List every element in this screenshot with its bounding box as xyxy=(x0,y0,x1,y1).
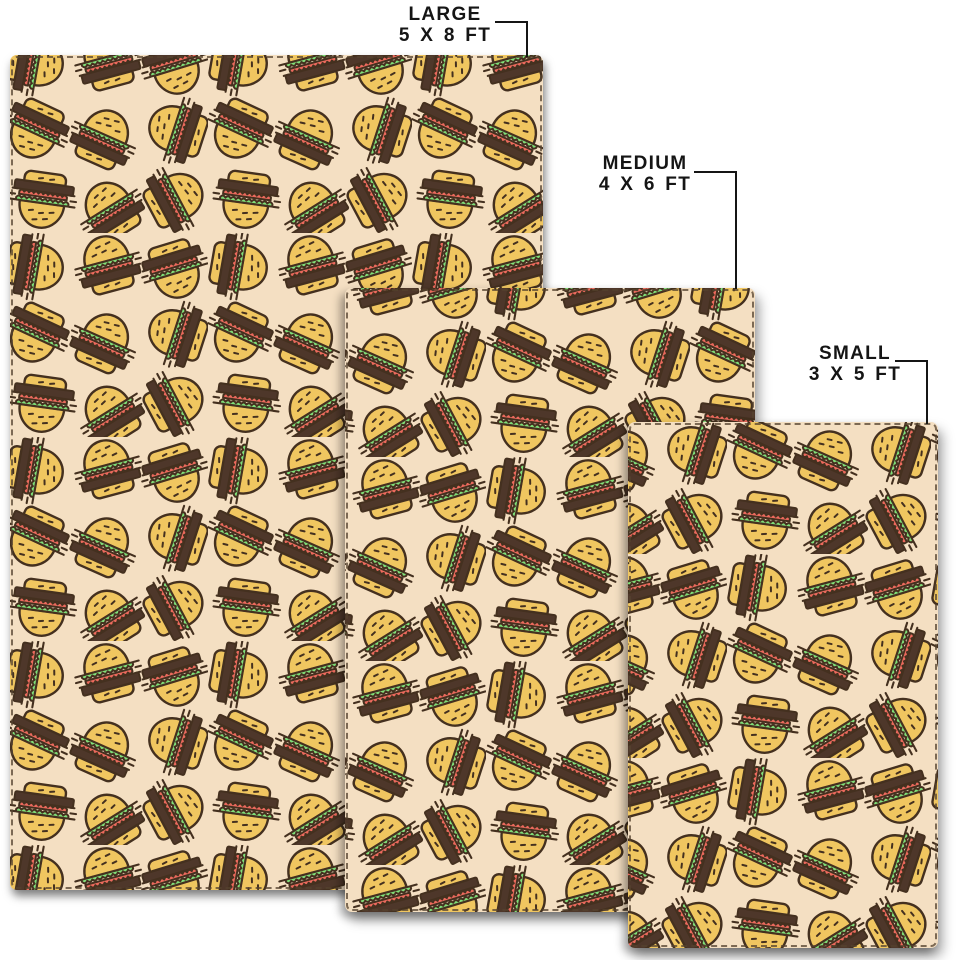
size-name-large: LARGE xyxy=(383,4,507,25)
callout-line-large-vertical xyxy=(526,21,528,57)
size-dimensions-large: 5 X 8 FT xyxy=(383,25,507,46)
size-name-medium: MEDIUM xyxy=(583,153,707,174)
size-dimensions-medium: 4 X 6 FT xyxy=(583,174,707,195)
size-dimensions-small: 3 X 5 FT xyxy=(793,364,917,385)
callout-line-small-vertical xyxy=(926,360,928,424)
callout-line-small-horizontal xyxy=(895,360,928,362)
callout-line-medium-horizontal xyxy=(694,171,737,173)
burger-pattern-small xyxy=(628,422,938,948)
rug-small xyxy=(628,422,938,948)
size-label-large: LARGE 5 X 8 FT xyxy=(383,4,507,46)
rug-size-comparison-mockup: LARGE 5 X 8 FT MEDIUM 4 X 6 FT SMALL 3 X… xyxy=(0,0,960,960)
size-label-small: SMALL 3 X 5 FT xyxy=(793,343,917,385)
size-label-medium: MEDIUM 4 X 6 FT xyxy=(583,153,707,195)
callout-line-medium-vertical xyxy=(735,171,737,289)
callout-line-large-horizontal xyxy=(495,21,528,23)
